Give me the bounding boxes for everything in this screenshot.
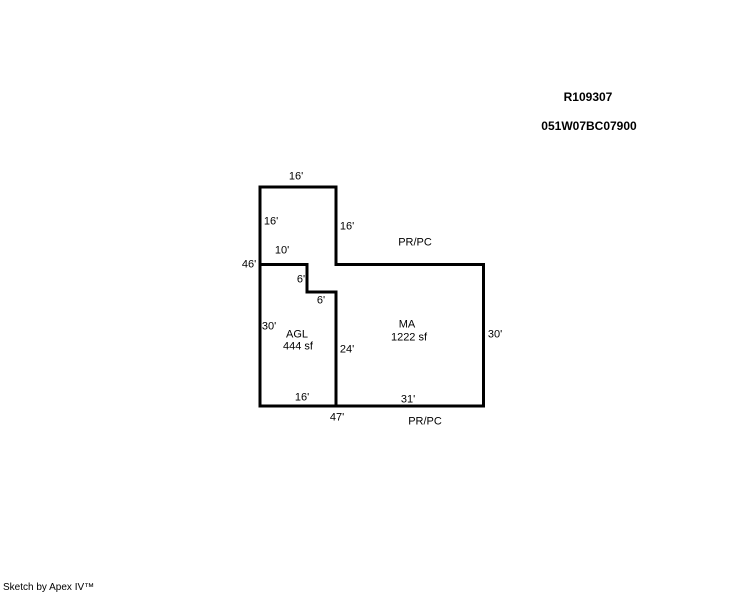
area-label-agl-size: 444 sf bbox=[283, 342, 313, 353]
dim-upper-left-16: 16' bbox=[264, 217, 278, 228]
area-label-ma-code: MA bbox=[399, 320, 416, 331]
sketch-credit: Sketch by Apex IV™ bbox=[3, 583, 94, 593]
dim-47: 47' bbox=[330, 413, 344, 424]
building-outline bbox=[260, 187, 484, 406]
dim-46: 46' bbox=[242, 260, 256, 271]
dim-24: 24' bbox=[340, 345, 354, 356]
dim-bottom-16: 16' bbox=[295, 393, 309, 404]
area-label-agl-code: AGL bbox=[286, 330, 308, 341]
area-label-ma-size: 1222 sf bbox=[391, 333, 427, 344]
dim-6-vertical: 6' bbox=[297, 275, 305, 286]
sketch-page: R109307 051W07BC07900 16' 16' 16' 10' 46… bbox=[0, 0, 744, 595]
record-number: R109307 bbox=[564, 91, 613, 103]
sketch-canvas bbox=[0, 0, 744, 595]
dim-31: 31' bbox=[401, 395, 415, 406]
annotation-prpc-bottom: PR/PC bbox=[408, 417, 442, 428]
dim-right-30: 30' bbox=[488, 330, 502, 341]
dim-top-16: 16' bbox=[289, 172, 303, 183]
annotation-prpc-top: PR/PC bbox=[398, 238, 432, 249]
dim-left-30: 30' bbox=[262, 322, 276, 333]
dim-6-horizontal: 6' bbox=[317, 296, 325, 307]
parcel-number: 051W07BC07900 bbox=[541, 120, 636, 132]
dim-10: 10' bbox=[275, 246, 289, 257]
dim-upper-right-16: 16' bbox=[340, 222, 354, 233]
